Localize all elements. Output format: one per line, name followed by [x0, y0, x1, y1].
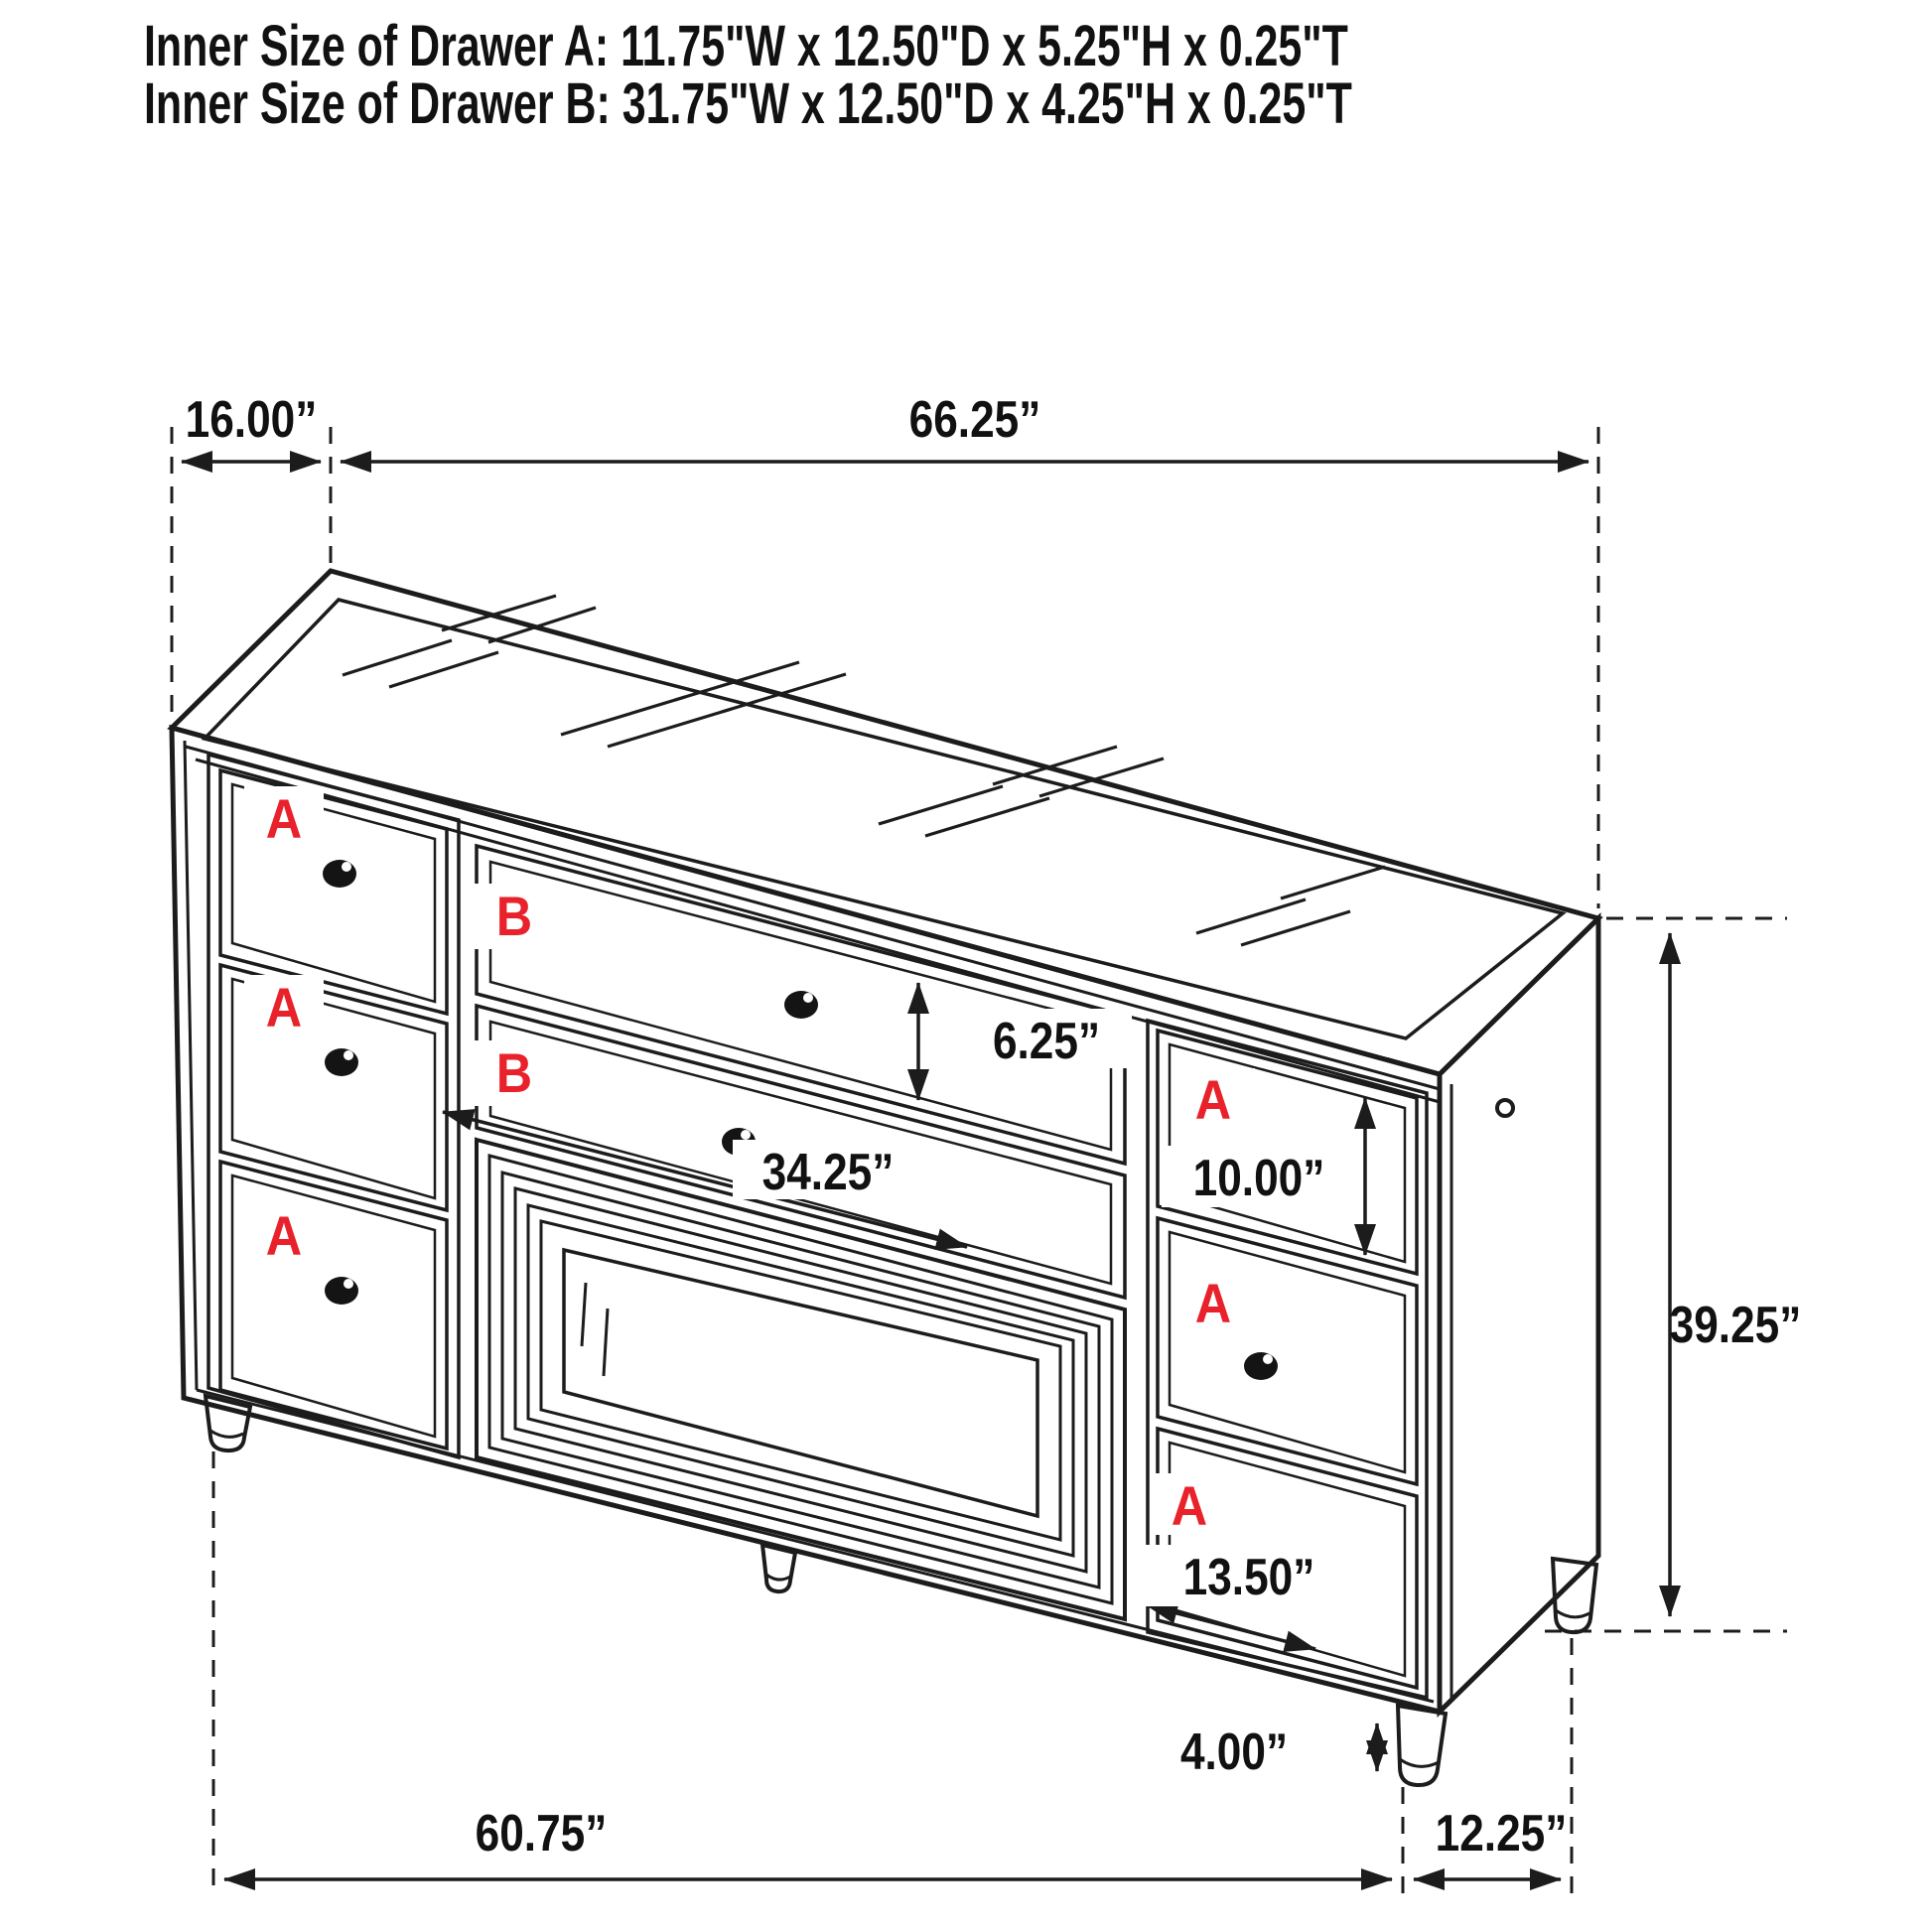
- left-drawer-column: A A A: [208, 755, 459, 1457]
- dim-b-drawer-height: 6.25”: [918, 983, 1132, 1100]
- dresser-right-side: [1440, 918, 1598, 1712]
- dresser-dimension-diagram: A A A: [0, 0, 1932, 1932]
- dimension-annotations: 16.00” 66.25” 6.25” 34.25” 10.00”: [172, 391, 1801, 1896]
- door-glass-shine: [582, 1283, 608, 1376]
- drawer-a-label: A: [1172, 1476, 1207, 1538]
- drawer-knob: [323, 860, 356, 888]
- drawer-b-label: B: [496, 887, 532, 948]
- dim-right-bottom-drawer-width: 13.50”: [1144, 1545, 1354, 1649]
- dim-b-drawer-width: 34.25”: [443, 1112, 967, 1247]
- drawer-a-right-2: A: [1158, 1218, 1417, 1484]
- drawer-a-label: A: [266, 1206, 302, 1268]
- drawer-b-label: B: [496, 1043, 532, 1105]
- dim-label-right-top-height: 10.00”: [1193, 1150, 1325, 1207]
- dim-label-base-depth: 12.25”: [1436, 1805, 1568, 1863]
- dim-label-top-depth: 16.00”: [186, 391, 318, 449]
- drawer-a-label: A: [266, 978, 302, 1039]
- dim-label-b-height: 6.25”: [993, 1013, 1100, 1070]
- header-line-2: Inner Size of Drawer B: 31.75"W x 12.50"…: [144, 71, 1352, 136]
- drawer-knob: [325, 1048, 358, 1076]
- dim-overall-height: 39.25”: [1545, 918, 1801, 1631]
- drawer-a-label: A: [266, 789, 302, 851]
- drawer-a-label: A: [1195, 1274, 1231, 1335]
- dim-label-leg-height: 4.00”: [1180, 1724, 1288, 1781]
- dim-label-base-width: 60.75”: [476, 1805, 608, 1863]
- drawer-knob: [784, 991, 818, 1019]
- dim-label-top-width: 66.25”: [909, 391, 1041, 449]
- dim-label-b-width: 34.25”: [762, 1144, 895, 1201]
- drawer-a-left-2: A: [220, 965, 447, 1210]
- front-left-border: [185, 741, 197, 1390]
- front-right-leg: [1398, 1706, 1446, 1785]
- dim-leg-height: 4.00”: [1180, 1724, 1377, 1781]
- header-block: Inner Size of Drawer A: 11.75"W x 12.50"…: [144, 14, 1352, 136]
- dim-top-depth: 16.00”: [172, 391, 331, 723]
- header-line-1: Inner Size of Drawer A: 11.75"W x 12.50"…: [144, 14, 1348, 78]
- drawer-a-label: A: [1195, 1070, 1231, 1132]
- center-leg: [762, 1545, 795, 1591]
- drawer-knob: [325, 1277, 358, 1305]
- dim-label-right-bottom-width: 13.50”: [1183, 1549, 1315, 1606]
- dim-label-overall-height: 39.25”: [1670, 1297, 1802, 1354]
- drawer-b-1: B: [475, 846, 1125, 1164]
- drawer-knob: [1244, 1352, 1278, 1380]
- side-peg-hole: [1497, 1100, 1513, 1116]
